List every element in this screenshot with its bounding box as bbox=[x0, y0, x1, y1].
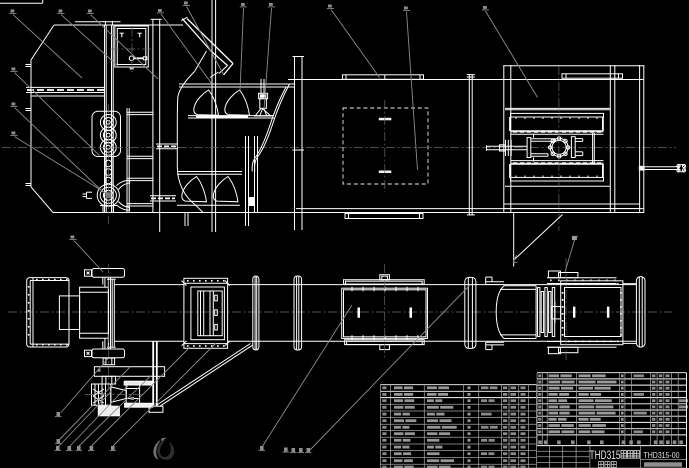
svg-text:THD315-00: THD315-00 bbox=[644, 450, 680, 460]
svg-text:THD315: THD315 bbox=[590, 450, 621, 462]
